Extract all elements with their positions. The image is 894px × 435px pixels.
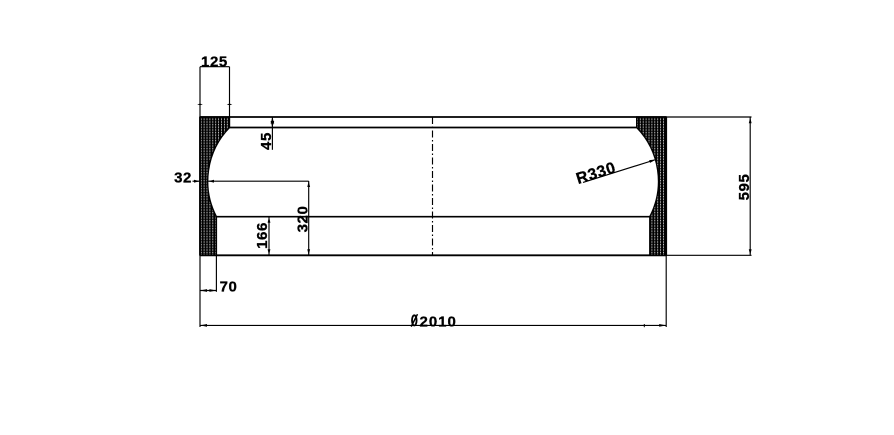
svg-text:125: 125 bbox=[201, 54, 228, 71]
svg-text:166: 166 bbox=[254, 222, 271, 249]
svg-text:70: 70 bbox=[220, 279, 238, 296]
svg-text:32: 32 bbox=[174, 170, 192, 187]
svg-text:320: 320 bbox=[295, 206, 312, 233]
svg-text:2010: 2010 bbox=[420, 313, 457, 330]
svg-text:595: 595 bbox=[736, 174, 753, 201]
svg-text:45: 45 bbox=[258, 132, 275, 150]
